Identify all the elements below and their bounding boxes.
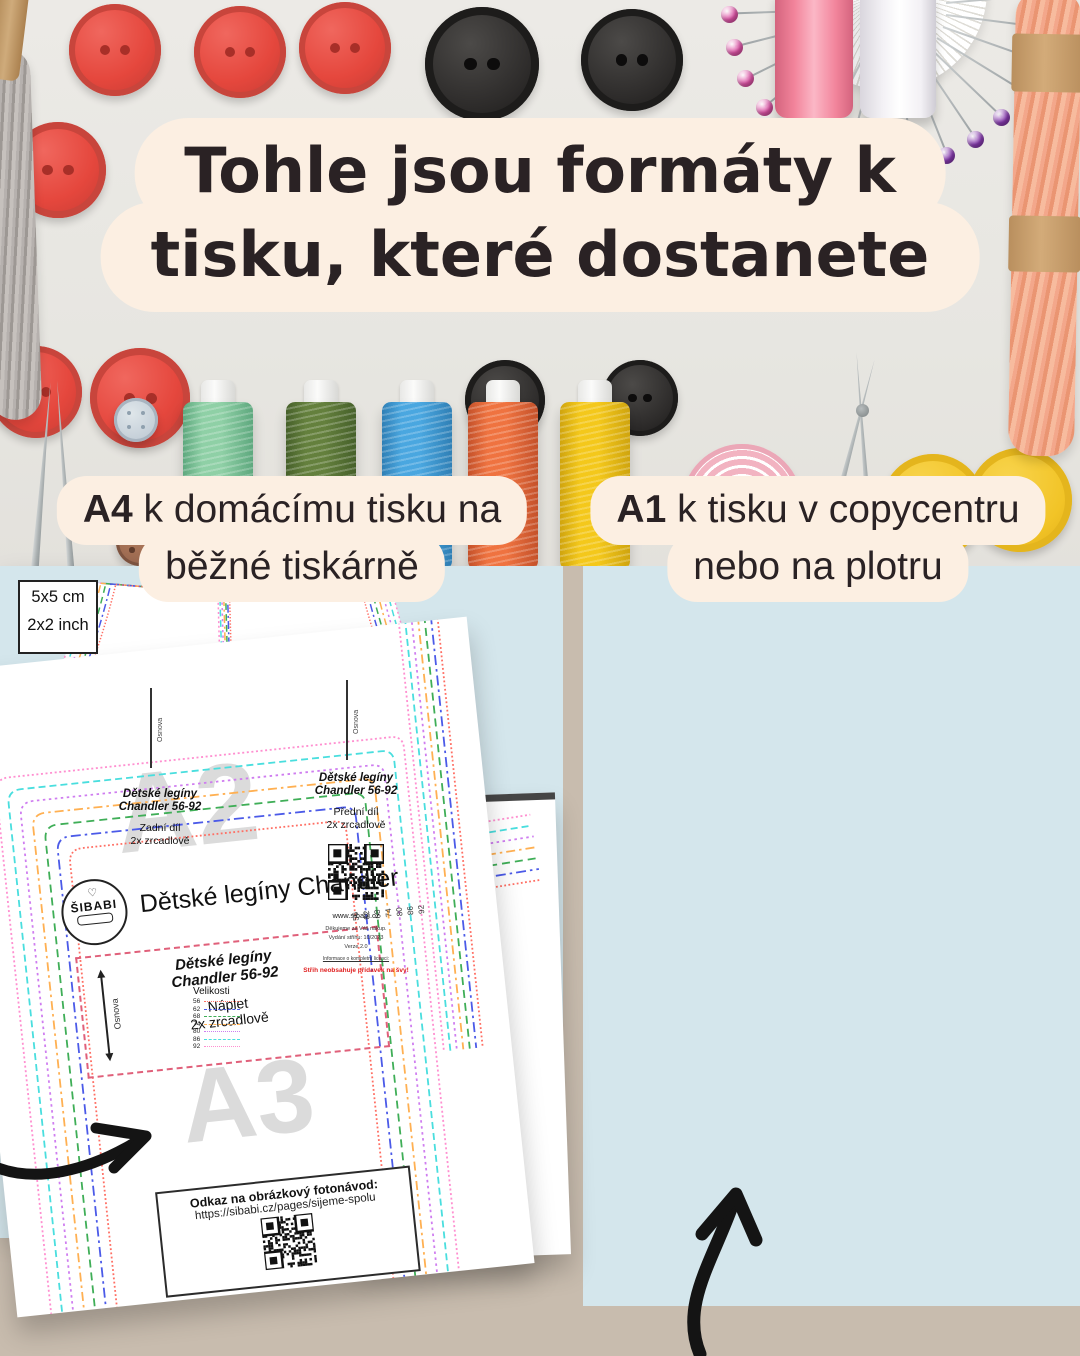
headline-bubble: Tohle jsou formáty k tisku, které dostan… (101, 118, 980, 312)
seam-allowance-warning: Střih neobsahuje přídavek na švy! (292, 967, 420, 974)
pink-thread-spool (775, 0, 853, 118)
button-hole (637, 54, 648, 65)
qr-code (260, 1213, 318, 1275)
format-a1-text: k tisku v copycentru (666, 488, 1019, 531)
scissors-screw (856, 404, 869, 417)
button-hole (643, 394, 651, 402)
front-piece-label: Dětské legínyChandler 56-92 Přední díl2x… (292, 772, 420, 974)
thanks-text: Děkujeme za Váš nákup. (292, 925, 420, 934)
format-label-a1-line2: nebo na plotru (667, 533, 968, 602)
qr-code (328, 844, 384, 905)
size-legend-line (204, 1039, 240, 1040)
size-legend-line (204, 1031, 240, 1032)
size-legend: Velikosti 56626874808692 (193, 986, 273, 1051)
format-label-a4-line2: běžné tiskárně (139, 533, 445, 602)
format-a1-code: A1 (616, 488, 666, 531)
white-thread-spool (860, 0, 936, 118)
headline-line2: tisku, které dostanete (101, 202, 980, 312)
button-hole (42, 165, 53, 176)
size-legend-row: 56 (193, 998, 273, 1006)
red-button (194, 6, 286, 98)
size-legend-row: 86 (193, 1036, 273, 1044)
size-legend-number: 80 (193, 1028, 204, 1035)
size-legend-line (204, 1009, 240, 1010)
pin-head (726, 39, 743, 56)
button-hole (141, 411, 146, 416)
size-legend-title: Velikosti (193, 986, 273, 997)
right-blue-panel (583, 566, 1080, 1306)
button-hole (127, 411, 132, 416)
floss-kraft-band (1011, 33, 1080, 92)
back-piece-label: Dětské legínyChandler 56-92 Zadní díl2x … (95, 788, 225, 848)
button-hole (245, 47, 255, 57)
size-legend-row: 62 (193, 1006, 273, 1014)
size-legend-number: 68 (193, 1013, 204, 1020)
arrow-to-a4-pages (0, 1106, 166, 1196)
button-hole (487, 58, 500, 71)
size-legend-number: 62 (193, 1006, 204, 1013)
pin-head (721, 6, 738, 23)
svg-text:Osnova: Osnova (110, 998, 123, 1030)
button-hole (63, 165, 74, 176)
gray-floss-skein (0, 47, 42, 421)
button-hole (141, 425, 146, 430)
size-legend-number: 74 (193, 1021, 204, 1028)
grainline-back-piece: Osnova (142, 684, 168, 772)
format-a4-text: k domácímu tisku na (133, 488, 501, 531)
size-legend-row: 80 (193, 1028, 273, 1036)
size-legend-number: 92 (193, 1043, 204, 1050)
button-hole (350, 43, 360, 53)
size-legend-number: 86 (193, 1036, 204, 1043)
clear-button (114, 398, 158, 442)
size-legend-row: 74 (193, 1021, 273, 1029)
pin-shaft (929, 47, 1003, 118)
format-a4-code: A4 (83, 488, 133, 531)
size-legend-row: 92 (193, 1043, 273, 1051)
pin-head (737, 70, 754, 87)
red-button (299, 2, 391, 94)
format-label-a1: A1 k tisku v copycentru nebo na plotru (590, 476, 1045, 602)
red-button (69, 4, 161, 96)
button-hole (100, 45, 110, 55)
back-piece-part: Zadní díl2x zrcadlově (95, 822, 225, 847)
grainline-front-piece: Osnova (338, 676, 364, 764)
button-hole (616, 54, 627, 65)
size-legend-row: 68 (193, 1013, 273, 1021)
button-hole (464, 58, 477, 71)
svg-text:Osnova: Osnova (353, 710, 360, 734)
edition-text: Vydání střihu: 10/2023Verze 2.0 (292, 934, 420, 952)
pin-head (993, 109, 1010, 126)
size-legend-line (204, 1046, 240, 1047)
instagram-graphic: { "headline": { "line1": "Tohle jsou for… (0, 0, 1080, 1350)
size-legend-rows: 56626874808692 (193, 998, 273, 1051)
size-legend-number: 56 (193, 998, 204, 1005)
bottom-section: A2 A3 ♡ ŠIBABI Dětské legíny Chandler Os… (0, 566, 1080, 1350)
black-button (425, 7, 539, 121)
svg-text:Osnova: Osnova (157, 718, 164, 742)
size-legend-line (204, 1024, 240, 1025)
button-hole (225, 47, 235, 57)
front-piece-name: Dětské legínyChandler 56-92 (292, 772, 420, 798)
button-hole (330, 43, 340, 53)
arrow-to-a1-sheet (660, 1166, 790, 1356)
front-piece-part: Přední díl2x zrcadlově (292, 806, 420, 831)
black-button (581, 9, 683, 111)
pin-head (756, 99, 773, 116)
button-hole (120, 45, 130, 55)
salmon-floss-skein (1008, 0, 1080, 457)
size-legend-line (204, 1016, 240, 1017)
format-label-a4: A4 k domácímu tisku na běžné tiskárně (57, 476, 527, 602)
floss-kraft-band (1008, 215, 1080, 272)
a4-front-page: A2 A3 ♡ ŠIBABI Dětské legíny Chandler Os… (0, 617, 535, 1318)
button-hole (127, 425, 132, 430)
license-text: Informace o kompletní licenci: (292, 956, 420, 962)
size-legend-line (204, 1001, 240, 1002)
test-square-imperial: 2x2 inch (20, 613, 96, 638)
button-hole (628, 394, 636, 402)
website-text: www.sibabi.cz (292, 911, 420, 920)
back-piece-name: Dětské legínyChandler 56-92 (95, 788, 225, 814)
